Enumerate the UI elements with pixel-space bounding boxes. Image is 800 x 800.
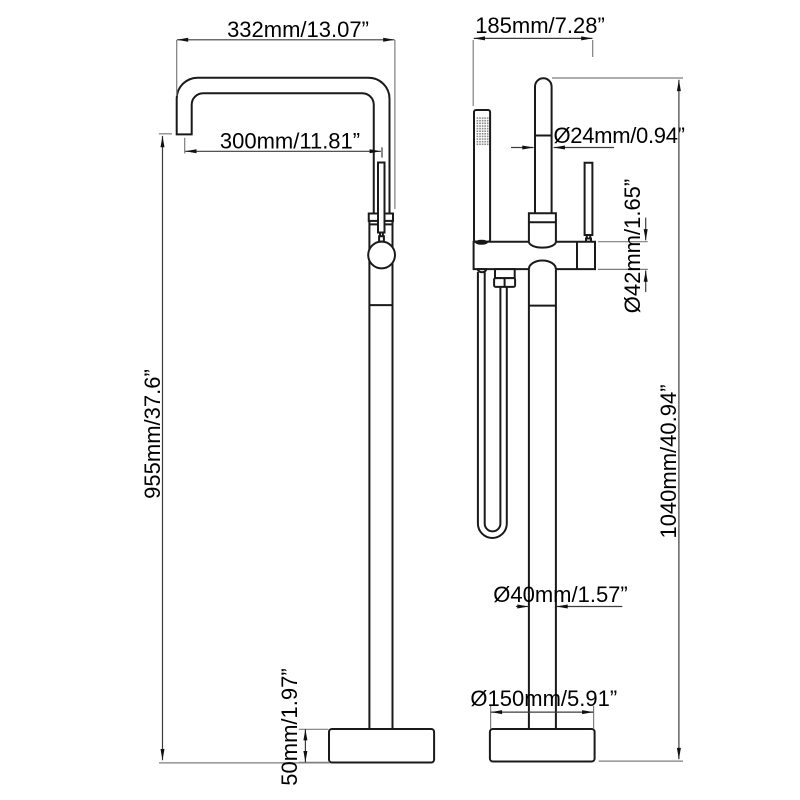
svg-text:1040mm/40.94”: 1040mm/40.94” xyxy=(656,384,681,538)
svg-text:332mm/13.07”: 332mm/13.07” xyxy=(227,17,369,42)
svg-text:Ø24mm/0.94”: Ø24mm/0.94” xyxy=(554,123,685,148)
svg-text:300mm/11.81”: 300mm/11.81” xyxy=(220,128,360,153)
svg-text:50mm/1.97”: 50mm/1.97” xyxy=(277,668,302,785)
svg-text:185mm/7.28”: 185mm/7.28” xyxy=(475,13,605,38)
svg-text:955mm/37.6”: 955mm/37.6” xyxy=(140,369,165,499)
svg-text:Ø40mm/1.57”: Ø40mm/1.57” xyxy=(493,582,628,607)
svg-text:Ø150mm/5.91”: Ø150mm/5.91” xyxy=(470,686,617,711)
svg-text:Ø42mm/1.65”: Ø42mm/1.65” xyxy=(620,179,645,314)
